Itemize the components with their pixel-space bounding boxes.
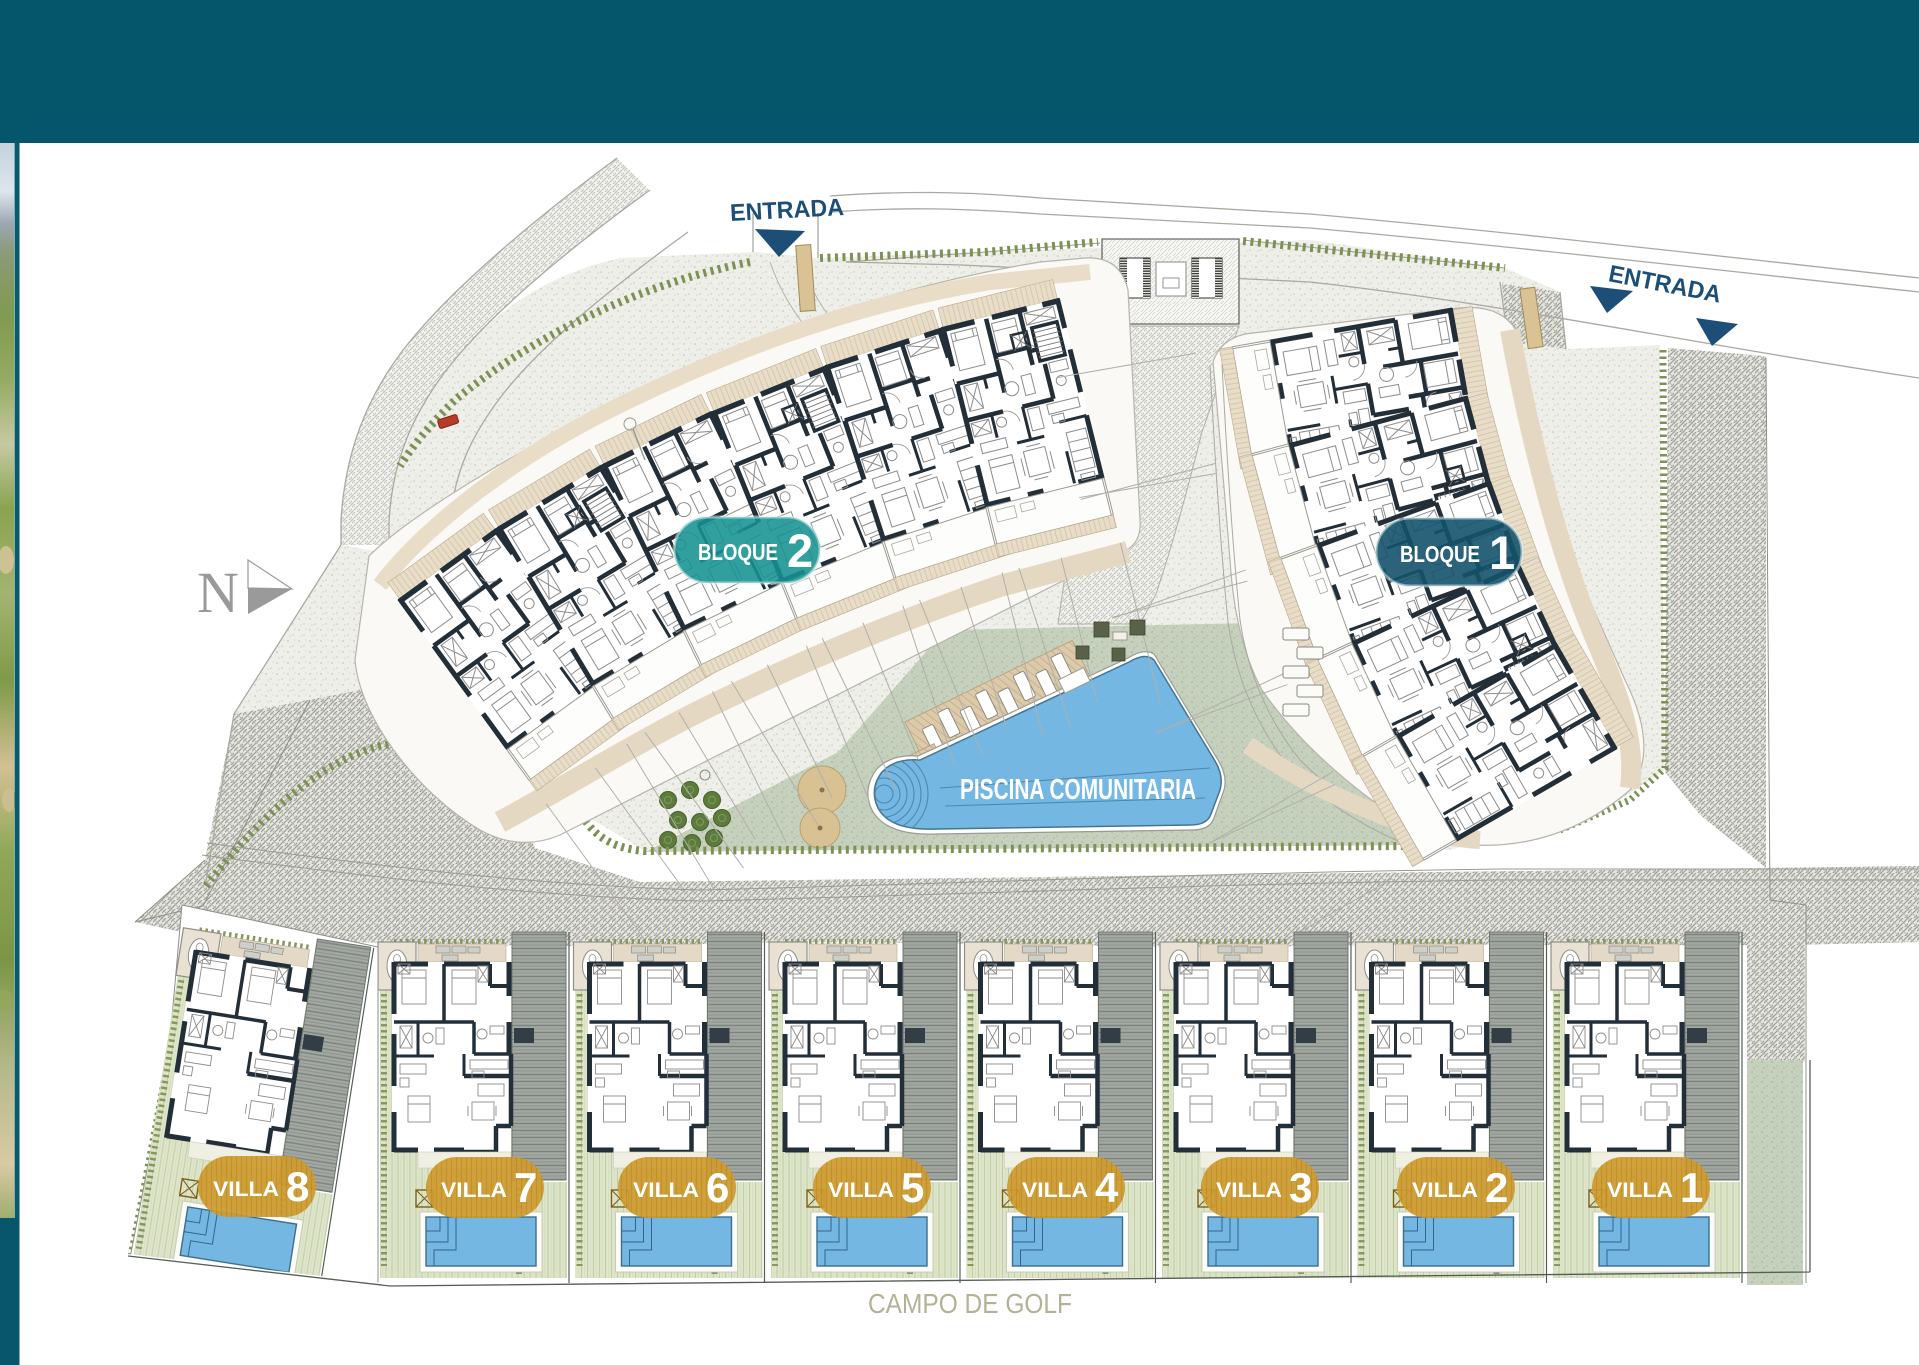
- svg-text:8: 8: [286, 1163, 309, 1210]
- svg-text:BLOQUE: BLOQUE: [698, 539, 778, 565]
- svg-text:5: 5: [901, 1164, 924, 1211]
- svg-text:VILLA: VILLA: [1412, 1179, 1478, 1202]
- svg-text:CAMPO DE GOLF: CAMPO DE GOLF: [868, 1288, 1072, 1319]
- svg-text:1: 1: [1680, 1164, 1703, 1211]
- svg-text:VILLA: VILLA: [1022, 1179, 1088, 1202]
- svg-text:N: N: [197, 560, 239, 625]
- svg-text:VILLA: VILLA: [828, 1179, 894, 1202]
- svg-text:3: 3: [1289, 1164, 1312, 1211]
- svg-text:4: 4: [1095, 1164, 1119, 1211]
- svg-text:VILLA: VILLA: [213, 1178, 279, 1201]
- svg-text:2: 2: [1485, 1164, 1508, 1211]
- svg-text:VILLA: VILLA: [1216, 1179, 1282, 1202]
- svg-text:2: 2: [787, 524, 813, 577]
- svg-text:PISCINA COMUNITARIA: PISCINA COMUNITARIA: [960, 774, 1196, 806]
- svg-text:7: 7: [514, 1164, 537, 1211]
- svg-text:VILLA: VILLA: [441, 1179, 507, 1202]
- svg-text:BLOQUE: BLOQUE: [1400, 541, 1480, 567]
- svg-text:6: 6: [706, 1164, 729, 1211]
- svg-text:VILLA: VILLA: [1607, 1179, 1673, 1202]
- svg-text:VILLA: VILLA: [633, 1179, 699, 1202]
- svg-text:1: 1: [1489, 526, 1515, 579]
